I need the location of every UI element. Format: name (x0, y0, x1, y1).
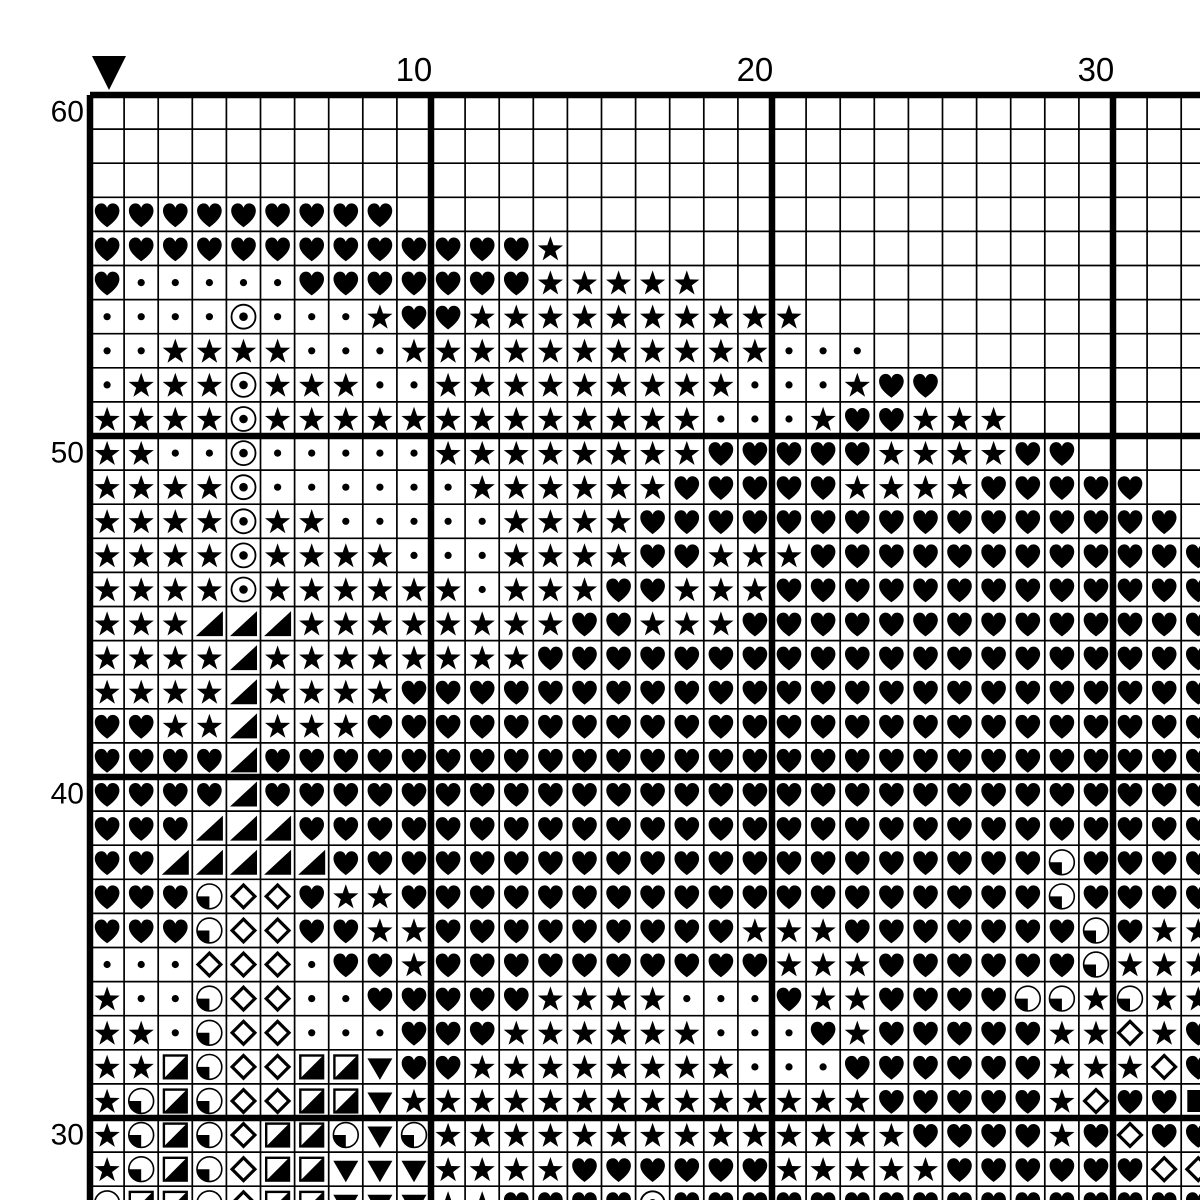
grid-cell (538, 270, 563, 294)
grid-cell (708, 611, 733, 635)
grid-cell (402, 680, 427, 704)
grid-cell (674, 680, 699, 704)
grid-cell (1050, 544, 1075, 568)
grid-cell (572, 782, 597, 806)
grid-cell (436, 817, 461, 841)
grid-cell (470, 714, 495, 738)
grid-cell (470, 237, 495, 261)
grid-cell (879, 407, 904, 431)
grid-cell (947, 1055, 972, 1079)
grid-cell (981, 817, 1006, 841)
grid-cell (342, 1029, 349, 1036)
grid-cell (709, 714, 734, 738)
grid-cell (1050, 953, 1075, 977)
grid-cell (811, 817, 836, 841)
grid-cell (299, 543, 324, 567)
grid-cell (606, 817, 631, 841)
grid-cell (743, 953, 768, 977)
grid-cell (947, 680, 972, 704)
grid-cell (164, 1055, 187, 1078)
grid-cell (299, 885, 324, 909)
grid-cell (333, 543, 358, 567)
grid-cell (163, 509, 188, 533)
grid-cell (538, 236, 563, 260)
grid-cell (743, 680, 768, 704)
grid-cell (785, 1029, 792, 1036)
grid-cell (504, 543, 529, 567)
grid-cell (504, 680, 529, 704)
grid-cell (240, 278, 247, 285)
grid-cell (1119, 1021, 1142, 1044)
grid-cell (197, 986, 222, 1011)
grid-cell (1187, 1089, 1200, 1111)
grid-cell (743, 748, 768, 772)
grid-cell (470, 372, 495, 396)
grid-cell (742, 577, 767, 601)
grid-cell (776, 1088, 801, 1112)
column-label: 10 (396, 52, 433, 88)
row-label: 30 (51, 1118, 84, 1151)
grid-cell (129, 1054, 154, 1078)
grid-cell (436, 919, 461, 943)
grid-cell (708, 1122, 733, 1146)
grid-cell (538, 885, 563, 909)
grid-cell (981, 953, 1006, 977)
grid-cell (572, 817, 597, 841)
grid-cell (1084, 748, 1109, 772)
grid-cell (470, 1088, 495, 1112)
grid-cell (606, 1158, 631, 1182)
grid-cell (299, 406, 324, 430)
grid-cell (129, 509, 154, 533)
grid-cell (572, 953, 597, 977)
grid-cell (845, 885, 870, 909)
grid-cell (1152, 851, 1177, 875)
grid-cell (1084, 476, 1109, 500)
grid-cell (640, 1122, 665, 1146)
grid-cell (674, 1020, 699, 1044)
grid-cell (742, 338, 767, 362)
grid-cell (1015, 1158, 1040, 1182)
grid-cell (640, 304, 665, 328)
grid-cell (538, 543, 563, 567)
grid-cell (572, 612, 597, 636)
grid-cell (572, 851, 597, 875)
grid-cell (436, 953, 461, 977)
grid-cell (402, 305, 427, 329)
grid-cell (196, 815, 223, 840)
grid-cell (1152, 748, 1177, 772)
grid-cell (606, 885, 631, 909)
grid-cell (777, 612, 802, 636)
grid-cell (743, 1192, 768, 1200)
grid-cell (266, 987, 289, 1010)
grid-cell (129, 406, 154, 430)
grid-cell (811, 1192, 836, 1200)
grid-cell (1117, 1054, 1142, 1078)
grid-cell (674, 851, 699, 875)
grid-cell (743, 817, 768, 841)
grid-cell (572, 1158, 597, 1182)
grid-cell (606, 372, 631, 396)
grid-cell (947, 851, 972, 875)
grid-cell (1152, 1123, 1177, 1147)
grid-cell (1186, 1055, 1200, 1079)
grid-cell (129, 1156, 154, 1181)
grid-cell (1186, 918, 1200, 942)
grid-cell (777, 782, 802, 806)
grid-cell (231, 203, 256, 227)
grid-cell (299, 782, 324, 806)
grid-cell (1152, 1089, 1177, 1113)
grid-cell (538, 304, 563, 328)
grid-cell (845, 646, 870, 670)
grid-cell (197, 509, 222, 533)
grid-cell (232, 1191, 255, 1200)
grid-cell (674, 817, 699, 841)
grid-cell (164, 1089, 187, 1112)
grid-cell (1083, 1020, 1108, 1044)
grid-cell (367, 1092, 392, 1113)
grid-cell (1118, 851, 1143, 875)
grid-cell (572, 680, 597, 704)
grid-cell (308, 483, 315, 490)
grid-cell (810, 1122, 835, 1146)
grid-cell (264, 815, 291, 840)
grid-cell (1152, 1192, 1177, 1200)
grid-cell (342, 994, 349, 1001)
grid-cell (1152, 918, 1177, 942)
grid-cell (913, 646, 938, 670)
grid-cell (1118, 646, 1143, 670)
grid-cell (1015, 1055, 1040, 1079)
grid-cell (94, 611, 119, 635)
grid-cell (402, 271, 427, 295)
grid-cell (129, 372, 154, 396)
grid-cell (368, 953, 393, 977)
grid-cell (333, 372, 358, 396)
grid-cell (103, 313, 110, 320)
grid-cell (1152, 1020, 1177, 1044)
grid-cell (785, 347, 792, 354)
grid-cell (683, 994, 690, 1001)
grid-cell (172, 960, 179, 967)
grid-cell (947, 1123, 972, 1147)
grid-cell (845, 1088, 870, 1112)
grid-cell (913, 919, 938, 943)
grid-cell (401, 577, 426, 601)
grid-cell (376, 449, 383, 456)
grid-cell (368, 851, 393, 875)
grid-cell (197, 338, 222, 362)
grid-cell (333, 577, 358, 601)
grid-cell (1118, 680, 1143, 704)
grid-cell (947, 578, 972, 602)
grid-cell (606, 578, 631, 602)
grid-cell (572, 543, 597, 567)
grid-cell (1186, 612, 1200, 636)
grid-cell (504, 851, 529, 875)
grid-cell (606, 612, 631, 636)
grid-cell (436, 851, 461, 875)
grid-cell (197, 203, 222, 227)
grid-cell (342, 517, 349, 524)
grid-cell (1186, 851, 1200, 875)
grid-cell (879, 987, 904, 1011)
grid-cell (674, 304, 699, 328)
grid-cell (947, 612, 972, 636)
grid-cell (640, 510, 665, 534)
grid-cell (138, 994, 145, 1001)
grid-cell (435, 338, 460, 362)
grid-cell (172, 1029, 179, 1036)
grid-cell (640, 406, 665, 430)
grid-cell (811, 748, 836, 772)
grid-cell (368, 714, 393, 738)
grid-cell (785, 381, 792, 388)
grid-cell (436, 1055, 461, 1079)
grid-cell (470, 748, 495, 772)
grid-cell (709, 1192, 734, 1200)
grid-cell (811, 578, 836, 602)
grid-cell (435, 1122, 460, 1146)
grid-cell (538, 1020, 563, 1044)
grid-cell (708, 1088, 733, 1112)
grid-cell (947, 474, 972, 498)
grid-cell (300, 1157, 323, 1180)
grid-cell (913, 1192, 938, 1200)
grid-cell (606, 338, 631, 362)
grid-cell (230, 849, 257, 874)
grid-cell (197, 645, 222, 669)
grid-cell (947, 782, 972, 806)
grid-cell (231, 237, 256, 261)
grid-cell (479, 585, 486, 592)
grid-cell (709, 1158, 734, 1182)
grid-cell (572, 646, 597, 670)
grid-cell (444, 551, 451, 558)
grid-cell (708, 543, 733, 567)
grid-cell (776, 304, 801, 328)
grid-cell (1084, 885, 1109, 909)
grid-cell (308, 960, 315, 967)
grid-cell (265, 406, 290, 430)
grid-cell (308, 313, 315, 320)
grid-cell (640, 270, 665, 294)
grid-cell (879, 817, 904, 841)
grid-cell (776, 918, 801, 942)
grid-cell (470, 987, 495, 1011)
grid-cell (845, 510, 870, 534)
grid-cell (811, 544, 836, 568)
grid-cell (1152, 714, 1177, 738)
grid-cell (1152, 646, 1177, 670)
grid-cell (1084, 1192, 1109, 1200)
grid-cell (674, 406, 699, 430)
grid-cell (367, 645, 392, 669)
grid-cell (95, 271, 120, 295)
grid-cell (470, 680, 495, 704)
grid-cell (709, 817, 734, 841)
grid-cell (402, 1021, 427, 1045)
grid-cell (776, 952, 801, 976)
grid-cell (709, 748, 734, 772)
grid-cell (368, 782, 393, 806)
grid-cell (230, 747, 257, 772)
grid-cell (129, 645, 154, 669)
grid-cell (197, 406, 222, 430)
grid-cell (717, 1029, 724, 1036)
grid-cell (470, 338, 495, 362)
grid-cell (206, 313, 213, 320)
grid-cell (640, 986, 665, 1010)
grid-cell (376, 381, 383, 388)
grid-cell (538, 440, 563, 464)
grid-cell (640, 1088, 665, 1112)
grid-cell (470, 885, 495, 909)
grid-cell (947, 440, 972, 464)
grid-cell (743, 510, 768, 534)
grid-cell (810, 406, 835, 430)
grid-cell (538, 953, 563, 977)
grid-cell (504, 1156, 529, 1180)
grid-cell (777, 442, 802, 466)
grid-cell (777, 510, 802, 534)
grid-cell (981, 578, 1006, 602)
grid-cell (913, 1156, 938, 1180)
grid-cell (308, 347, 315, 354)
grid-cell (94, 1088, 119, 1112)
grid-cell (1050, 578, 1075, 602)
grid-cell (129, 237, 154, 261)
grid-cell (470, 406, 495, 430)
grid-cell (342, 449, 349, 456)
grid-cell (538, 986, 563, 1010)
grid-cell (367, 1160, 392, 1182)
grid-cell (436, 1021, 461, 1045)
grid-cell (197, 237, 222, 261)
grid-cell (266, 919, 289, 942)
grid-cell (333, 884, 358, 908)
grid-cell (231, 372, 255, 396)
grid-cell (981, 476, 1006, 500)
grid-cell (845, 1122, 870, 1146)
grid-cell (163, 817, 188, 841)
grid-cell (538, 851, 563, 875)
grid-cell (913, 373, 938, 397)
grid-cell (334, 1055, 357, 1078)
grid-cell (538, 817, 563, 841)
grid-cell (879, 646, 904, 670)
grid-cell (947, 544, 972, 568)
grid-cell (129, 919, 154, 943)
grid-cell (981, 1158, 1006, 1182)
grid-cell (981, 748, 1006, 772)
grid-cell (776, 1122, 801, 1146)
grid-cell (538, 919, 563, 943)
grid-cell (231, 509, 255, 533)
grid-cell (606, 440, 631, 464)
grid-cell (103, 960, 110, 967)
grid-cell (504, 645, 529, 669)
grid-cell (777, 680, 802, 704)
grid-cell (1118, 986, 1143, 1011)
grid-cell (436, 305, 461, 329)
grid-cell (1186, 748, 1200, 772)
grid-cell (947, 953, 972, 977)
grid-cell (333, 406, 358, 430)
grid-cell (742, 1122, 767, 1146)
grid-cell (1085, 1089, 1108, 1112)
grid-cell (95, 714, 120, 738)
grid-cell (129, 679, 154, 703)
grid-cell (742, 304, 767, 328)
grid-cell (1083, 986, 1108, 1010)
grid-cell (845, 442, 870, 466)
grid-cell (674, 338, 699, 362)
grid-cell (230, 679, 257, 704)
grid-cell (402, 817, 427, 841)
grid-cell (266, 1157, 289, 1180)
grid-cell (163, 782, 188, 806)
grid-cell (879, 1122, 904, 1146)
grid-cell (94, 679, 119, 703)
grid-cell (981, 782, 1006, 806)
grid-cell (410, 483, 417, 490)
grid-cell (504, 817, 529, 841)
grid-cell (367, 543, 392, 567)
grid-cell (606, 304, 631, 328)
grid-cell (913, 578, 938, 602)
grid-cell (197, 1156, 222, 1181)
grid-cell (572, 986, 597, 1010)
grid-cell (981, 851, 1006, 875)
grid-cell (572, 1020, 597, 1044)
grid-cell (572, 1088, 597, 1112)
grid-cell (308, 449, 315, 456)
grid-cell (401, 1160, 426, 1182)
grid-cell (435, 1088, 460, 1112)
grid-cell (674, 1088, 699, 1112)
grid-cell (197, 1020, 222, 1045)
grid-cell (845, 612, 870, 636)
grid-cell (410, 449, 417, 456)
grid-cell (308, 1029, 315, 1036)
grid-cell (333, 953, 358, 977)
grid-cell (163, 713, 188, 737)
grid-cell (196, 611, 223, 636)
grid-cell (572, 338, 597, 362)
grid-cell (743, 885, 768, 909)
grid-cell (640, 851, 665, 875)
grid-cell (1084, 714, 1109, 738)
grid-cell (265, 509, 290, 533)
grid-cell (538, 714, 563, 738)
grid-cell (1186, 646, 1200, 670)
grid-cell (981, 406, 1006, 430)
grid-cell (981, 714, 1006, 738)
grid-cell (1152, 986, 1177, 1010)
grid-cell (572, 919, 597, 943)
grid-cell (479, 551, 486, 558)
grid-cell (197, 372, 222, 396)
grid-cell (436, 237, 461, 261)
grid-cell (265, 679, 290, 703)
grid-cell (742, 1088, 767, 1112)
grid-cell (129, 1088, 154, 1113)
grid-cell (436, 885, 461, 909)
grid-cell (1050, 817, 1075, 841)
